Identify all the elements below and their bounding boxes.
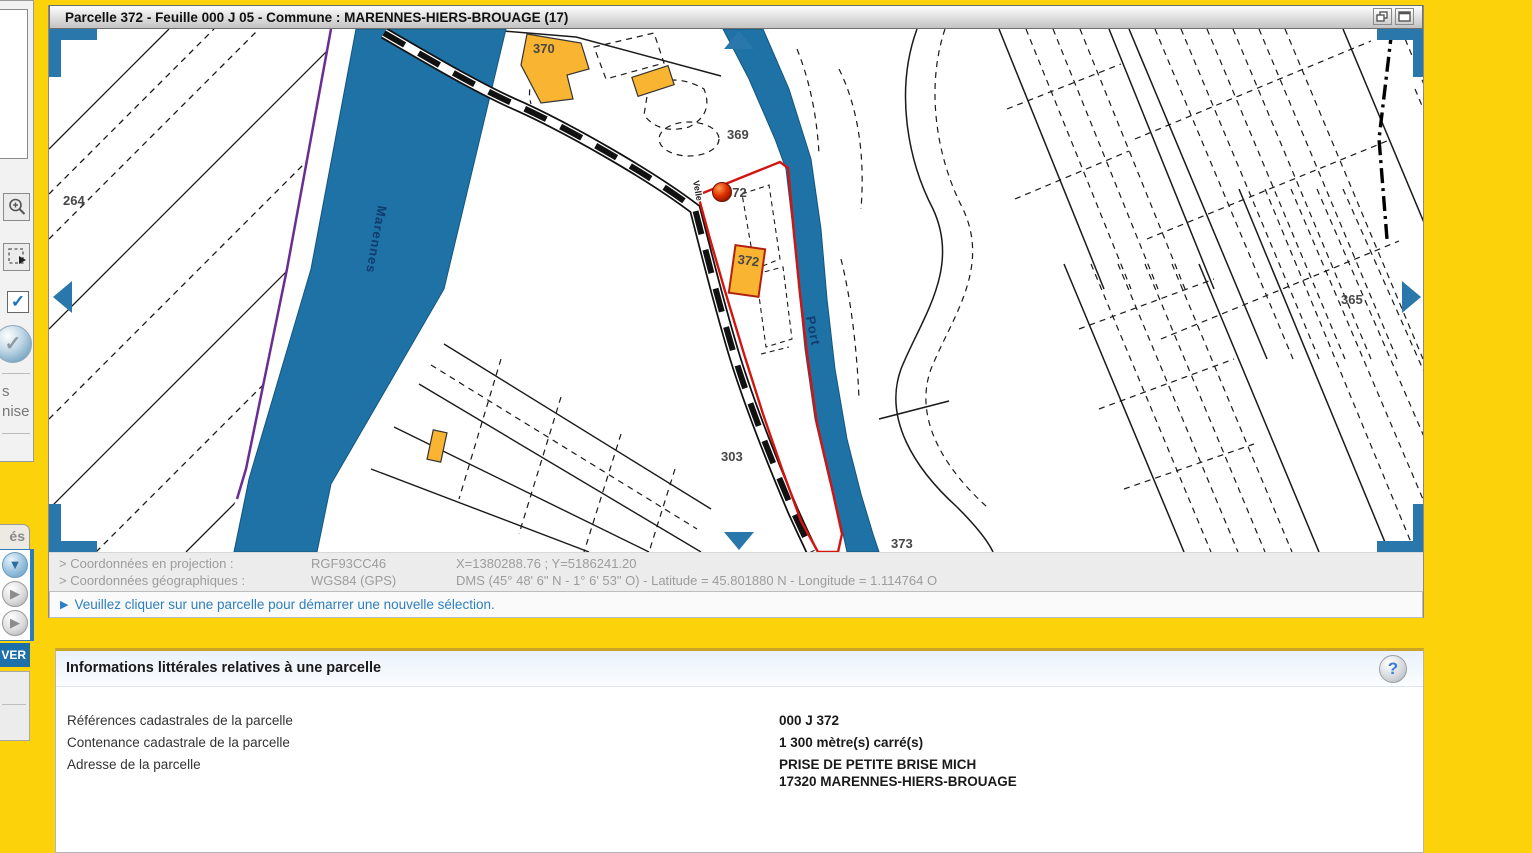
- validate-button[interactable]: ✓: [0, 325, 32, 363]
- magnifier-plus-icon: [7, 197, 27, 217]
- parcel-address-label: Adresse de la parcelle: [67, 757, 201, 772]
- cadastral-reference-label: Références cadastrales de la parcelle: [67, 713, 293, 728]
- info-panel-header: Informations littérales relatives à une …: [56, 651, 1423, 687]
- projection-coords-value: X=1380288.76 ; Y=5186241.20: [456, 556, 637, 571]
- sidebar-divider: [2, 433, 30, 434]
- map-window: Parcelle 372 - Feuille 000 J 05 - Commun…: [48, 5, 1424, 618]
- divider: [2, 704, 26, 705]
- sidebar-round-buttons-panel: ▼ ▶ ▶: [0, 549, 34, 641]
- map-window-title: Parcelle 372 - Feuille 000 J 05 - Commun…: [50, 10, 568, 25]
- instruction-message: Veuillez cliquer sur une parcelle pour d…: [74, 597, 494, 612]
- layer-checkbox[interactable]: ✓: [7, 291, 29, 313]
- sidebar-divider: [2, 373, 30, 374]
- info-panel-title: Informations littérales relatives à une …: [56, 651, 1423, 685]
- selection-rect-icon: [7, 247, 27, 267]
- cadastral-reference-value: 000 J 372: [779, 713, 839, 728]
- sidebar-cropped-text-2: nise: [2, 403, 30, 420]
- sidebar-cropped-text-1: s: [2, 383, 10, 400]
- parcel-info-panel: Informations littérales relatives à une …: [55, 648, 1424, 853]
- map-window-titlebar: Parcelle 372 - Feuille 000 J 05 - Commun…: [49, 5, 1423, 29]
- building-372: 372: [729, 245, 765, 297]
- collapse-down-button[interactable]: ▼: [2, 552, 28, 578]
- play-button-1[interactable]: ▶: [2, 581, 28, 607]
- sidebar-bottom-stub: [0, 671, 30, 741]
- restore-window-button[interactable]: [1373, 8, 1392, 25]
- selected-parcel-marker-dot: [713, 183, 732, 202]
- parcel-number-264: 264: [63, 193, 85, 208]
- minimap-box: [0, 9, 28, 159]
- geographic-system: WGS84 (GPS): [311, 573, 396, 588]
- instruction-message-bar: ▶ Veuillez cliquer sur une parcelle pour…: [49, 591, 1423, 618]
- parcel-number-369: 369: [727, 127, 749, 142]
- message-arrow-icon: ▶: [60, 598, 68, 611]
- restore-icon: [1376, 11, 1389, 22]
- parcel-number-365: 365: [1341, 292, 1363, 307]
- projection-system: RGF93CC46: [311, 556, 386, 571]
- select-area-tool-button[interactable]: [3, 243, 30, 271]
- cadastral-area-value: 1 300 mètre(s) carré(s): [779, 735, 923, 750]
- coordinates-bar: > Coordonnées en projection : RGF93CC46 …: [49, 552, 1423, 591]
- sidebar-tab-cropped[interactable]: és: [0, 524, 30, 549]
- projection-coords-label: > Coordonnées en projection :: [59, 556, 234, 571]
- parcel-address-line1: PRISE DE PETITE BRISE MICH: [779, 757, 976, 772]
- maximize-window-button[interactable]: [1395, 8, 1414, 25]
- geographic-coords-label: > Coordonnées géographiques :: [59, 573, 245, 588]
- cadastral-area-label: Contenance cadastrale de la parcelle: [67, 735, 290, 750]
- parcel-number-373: 373: [891, 536, 913, 551]
- parcel-number-303: 303: [721, 449, 743, 464]
- parcel-number-372-building: 372: [737, 252, 761, 270]
- parcel-address-line2: 17320 MARENNES-HIERS-BROUAGE: [779, 774, 1017, 789]
- play-button-2[interactable]: ▶: [2, 610, 28, 636]
- parcel-number-370: 370: [533, 41, 555, 56]
- zoom-tool-button[interactable]: [3, 193, 30, 221]
- send-button-cropped[interactable]: VER: [0, 643, 30, 667]
- help-button[interactable]: ?: [1379, 655, 1407, 683]
- sidebar-tools-panel: ✓ ✓ s nise: [0, 0, 34, 462]
- cadastral-map[interactable]: 372 264 370 369 372 303 373 365 Marennes…: [49, 29, 1423, 552]
- maximize-icon: [1398, 11, 1411, 22]
- geographic-coords-value: DMS (45° 48' 6" N - 1° 6' 53" O) - Latit…: [456, 573, 937, 588]
